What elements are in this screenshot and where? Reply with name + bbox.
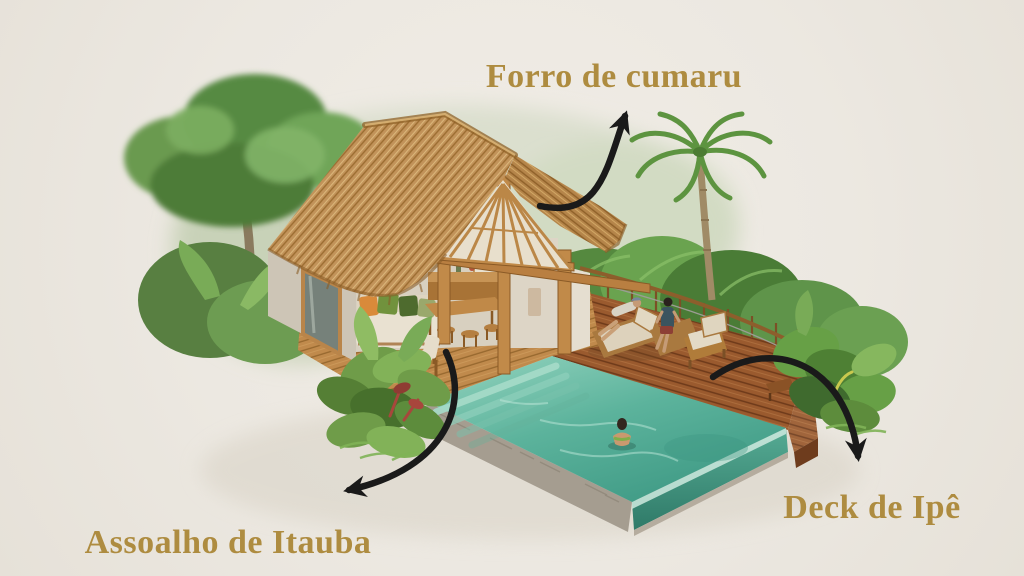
annotated-render-page: Forro de cumaru Assoalho de Itauba Deck … — [0, 0, 1024, 576]
label-deck-de-ipe: Deck de Ipê — [783, 489, 960, 527]
label-assoalho-de-itauba: Assoalho de Itauba — [85, 524, 372, 562]
towel — [528, 288, 541, 316]
label-forro-de-cumaru: Forro de cumaru — [486, 58, 742, 96]
